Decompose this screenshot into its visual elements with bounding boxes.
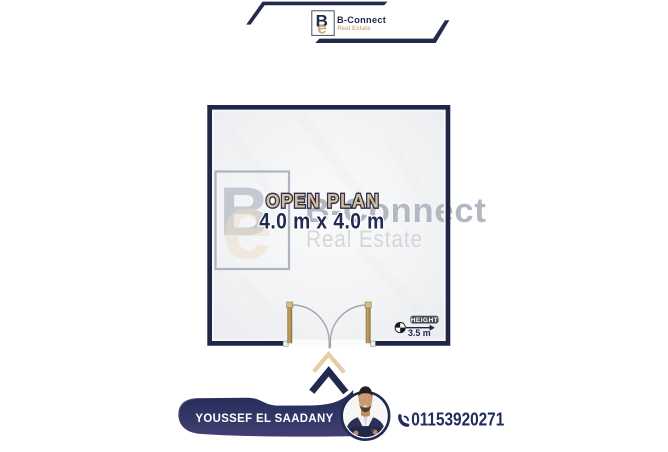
svg-text:Real Estate: Real Estate (337, 25, 371, 32)
svg-text:4.0 m x 4.0 m: 4.0 m x 4.0 m (259, 209, 384, 233)
svg-text:HEIGHT: HEIGHT (411, 317, 438, 324)
svg-text:01153920271: 01153920271 (411, 409, 504, 430)
svg-text:B-Connect: B-Connect (337, 15, 386, 25)
svg-text:YOUSSEF EL SAADANY: YOUSSEF EL SAADANY (195, 411, 333, 426)
svg-text:e: e (317, 18, 326, 37)
svg-text:3.5 m: 3.5 m (408, 328, 431, 338)
